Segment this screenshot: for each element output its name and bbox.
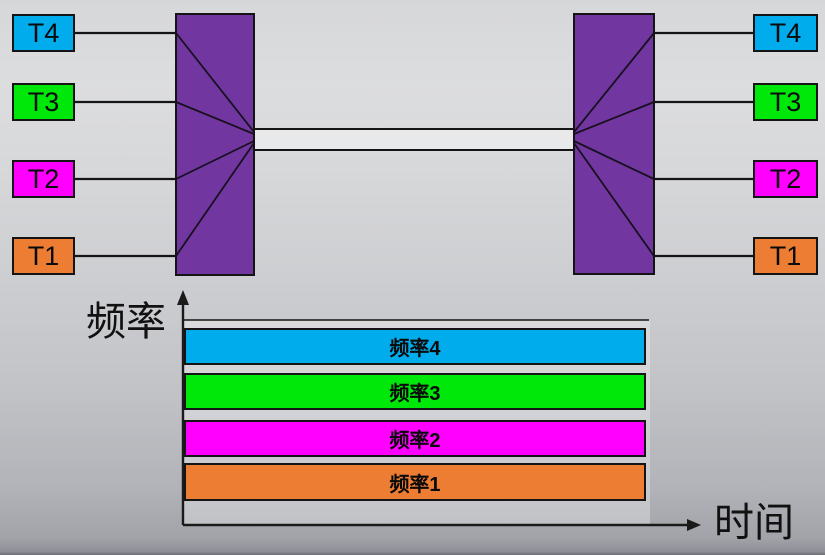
y-axis-arrow-icon [177,290,189,305]
y-axis-label: 频率 [76,302,176,342]
channel-band [255,129,573,150]
x-axis-label: 时间 [714,503,794,543]
connector-lines-overlay [0,0,825,555]
x-axis-arrow-icon [687,519,701,531]
fdm-multiplexing-diagram: T4 T3 T2 T1 T4 T3 T2 T1 频率4 频率3 频率2 频率1 [0,0,825,555]
